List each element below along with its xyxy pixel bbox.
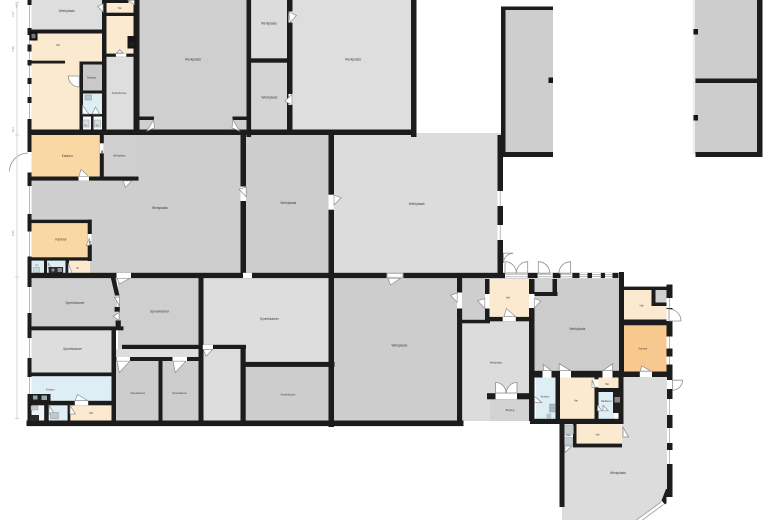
svg-text:Hal: Hal [640, 305, 644, 308]
svg-text:Berging: Berging [87, 77, 96, 80]
svg-text:Toilet: Toilet [566, 434, 572, 437]
svg-text:Werkplaats: Werkplaats [261, 22, 277, 26]
svg-text:8,95: 8,95 [11, 230, 15, 236]
svg-text:Kantoor: Kantoor [639, 348, 648, 351]
svg-text:Keuken: Keuken [541, 396, 550, 399]
svg-text:Werkplaats: Werkplaats [610, 471, 626, 475]
svg-text:Badkamer: Badkamer [601, 400, 612, 403]
svg-text:WC: WC [96, 125, 100, 127]
svg-text:Hal: Hal [118, 7, 122, 10]
svg-text:Werkplaats: Werkplaats [345, 58, 361, 62]
svg-text:Werkplaats: Werkplaats [262, 96, 278, 100]
svg-text:Keuken: Keuken [46, 389, 55, 392]
svg-text:Werkplaats: Werkplaats [113, 155, 126, 158]
svg-text:Hal: Hal [506, 297, 510, 300]
svg-text:Hal: Hal [574, 400, 578, 403]
svg-text:Werkplaats: Werkplaats [409, 202, 425, 206]
svg-text:10,3: 10,3 [11, 127, 15, 133]
svg-text:Werkplaats: Werkplaats [185, 58, 201, 62]
svg-text:5,88: 5,88 [11, 46, 15, 52]
svg-text:Spreekkamer: Spreekkamer [150, 310, 170, 314]
svg-text:2,07: 2,07 [11, 11, 15, 17]
svg-text:Hal: Hal [89, 412, 93, 415]
svg-text:Werkplaats: Werkplaats [152, 206, 168, 210]
svg-text:Archiefruimte: Archiefruimte [112, 92, 127, 95]
svg-text:Spreekkamer: Spreekkamer [63, 347, 83, 351]
svg-text:Spreekkamer: Spreekkamer [172, 392, 187, 395]
svg-text:Kantoor: Kantoor [55, 238, 67, 242]
svg-text:Werkplaats: Werkplaats [280, 201, 296, 205]
svg-text:Werkplaats: Werkplaats [490, 362, 503, 365]
svg-text:WC: WC [84, 125, 88, 127]
svg-text:Spreekkamer: Spreekkamer [66, 301, 86, 305]
svg-text:4,5: 4,5 [15, 4, 19, 8]
svg-text:Berging: Berging [506, 409, 515, 412]
svg-text:ge: ge [130, 40, 135, 45]
svg-text:Hal: Hal [56, 44, 60, 47]
svg-text:Hal: Hal [605, 383, 609, 386]
svg-text:WC: WC [35, 265, 39, 267]
svg-text:Spreekkamer: Spreekkamer [130, 392, 145, 395]
svg-text:Spreekkamer: Spreekkamer [260, 317, 280, 321]
svg-text:Werkplaats: Werkplaats [59, 9, 75, 13]
svg-text:Archiefruimte: Archiefruimte [281, 394, 296, 397]
svg-text:Hal: Hal [596, 434, 600, 437]
svg-text:Werkplaats: Werkplaats [391, 344, 407, 348]
svg-text:Werkplaats: Werkplaats [569, 327, 585, 331]
svg-text:Kantoor: Kantoor [62, 154, 74, 158]
